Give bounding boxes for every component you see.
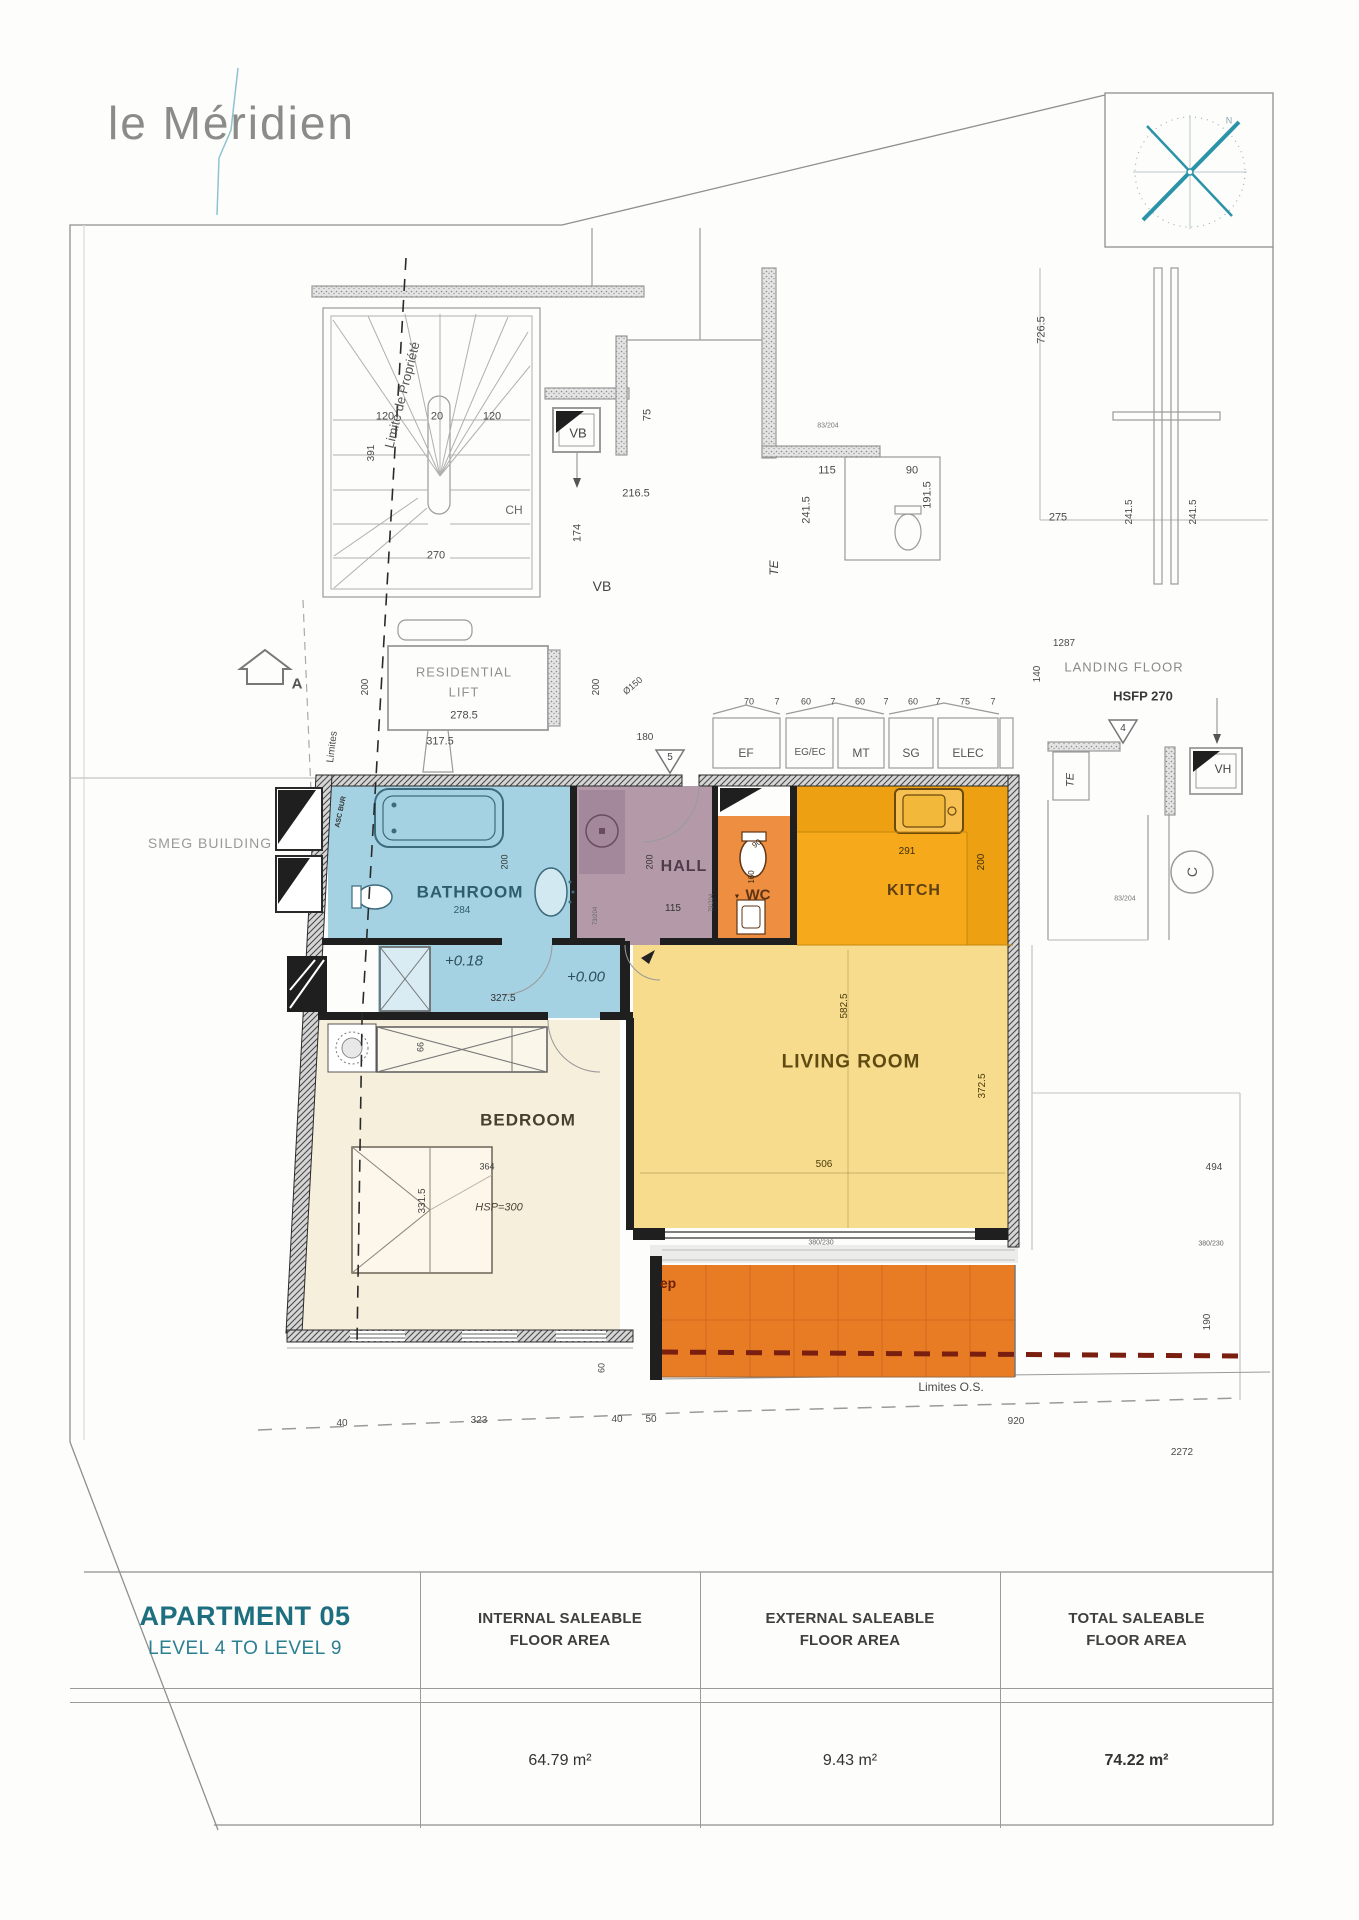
internal-area-value-cell: 64.79 m² [420,1701,700,1821]
vb-hatch-icon [556,411,584,433]
apartment-subtitle: LEVEL 4 TO LEVEL 9 [148,1638,342,1660]
total-area-value: 74.22 m² [1104,1752,1168,1770]
floorplan-page: le Méridien [0,0,1359,1920]
living-room-floor [633,945,1008,1228]
internal-area-header: INTERNAL SALEABLE FLOOR AREA [470,1608,650,1652]
compass-icon [1133,115,1247,229]
area-table: APARTMENT 05 LEVEL 4 TO LEVEL 9 INTERNAL… [70,1572,1273,1828]
external-area-value-cell: 9.43 m² [700,1701,1000,1821]
internal-area-value: 64.79 m² [528,1752,591,1770]
external-area-header: EXTERNAL SALEABLE FLOOR AREA [760,1608,940,1652]
external-area-header-cell: EXTERNAL SALEABLE FLOOR AREA [700,1572,1000,1688]
vh-hatch-icon [1193,751,1220,772]
wc-sink-icon [737,900,765,934]
total-area-value-cell: 74.22 m² [1000,1701,1273,1821]
external-area-value: 9.43 m² [823,1752,877,1770]
level-triangle-5 [656,750,684,773]
neighbour-toilet-icon [895,514,921,550]
section-marker-icon [240,650,290,684]
total-area-header: TOTAL SALEABLE FLOOR AREA [1047,1608,1227,1652]
residential-lift-box [388,646,548,730]
logo-text: le Méridien [108,96,355,150]
column-c-icon [1171,851,1213,893]
bathroom-floor [328,786,575,941]
bathroom-sink-icon [535,868,567,916]
wc-toilet-icon [740,839,766,877]
internal-area-header-cell: INTERNAL SALEABLE FLOOR AREA [420,1572,700,1688]
apartment-title: APARTMENT 05 [139,1601,350,1632]
bathroom-toilet-icon [358,885,392,909]
apartment-title-cell: APARTMENT 05 LEVEL 4 TO LEVEL 9 [70,1572,420,1688]
bed-icon [352,1147,492,1273]
level-triangle-4 [1109,720,1137,743]
total-area-header-cell: TOTAL SALEABLE FLOOR AREA [1000,1572,1273,1688]
